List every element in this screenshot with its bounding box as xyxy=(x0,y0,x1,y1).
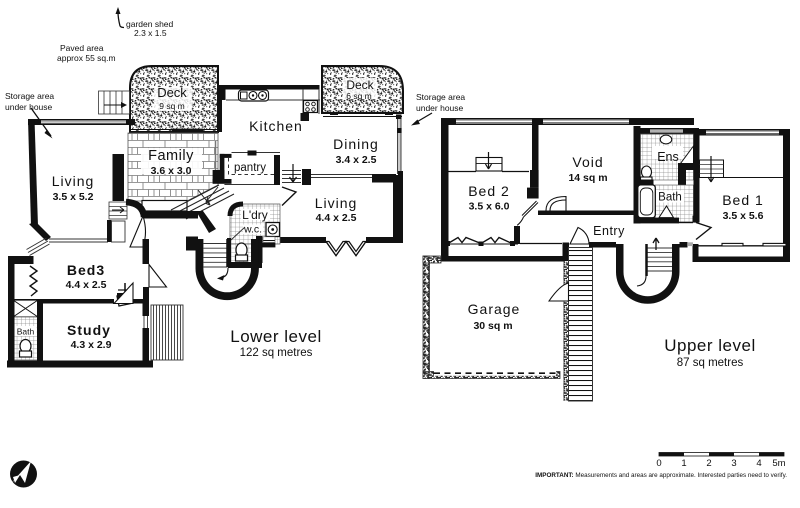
svg-text:3.4 x 2.5: 3.4 x 2.5 xyxy=(336,154,377,166)
svg-text:Bed 2: Bed 2 xyxy=(468,183,510,199)
svg-text:4.4 x 2.5: 4.4 x 2.5 xyxy=(66,279,107,291)
svg-text:under house: under house xyxy=(416,103,464,113)
svg-text:Living: Living xyxy=(52,173,95,189)
svg-text:Garage: Garage xyxy=(468,301,521,317)
svg-text:Ens: Ens xyxy=(657,150,679,164)
svg-text:approx 55 sq.m: approx 55 sq.m xyxy=(57,53,116,63)
svg-text:Study: Study xyxy=(67,322,111,338)
svg-text:0: 0 xyxy=(656,458,661,469)
svg-text:122 sq metres: 122 sq metres xyxy=(240,347,313,359)
svg-text:pantry: pantry xyxy=(234,162,266,174)
svg-text:Entry: Entry xyxy=(593,224,625,238)
svg-text:3.5 x 5.2: 3.5 x 5.2 xyxy=(53,191,94,203)
svg-text:Bath: Bath xyxy=(17,327,35,337)
svg-text:9 sq m: 9 sq m xyxy=(159,101,185,111)
svg-text:30 sq m: 30 sq m xyxy=(473,320,512,332)
svg-text:87 sq metres: 87 sq metres xyxy=(677,357,744,369)
svg-text:w.c.: w.c. xyxy=(243,224,262,236)
svg-text:Paved area: Paved area xyxy=(60,43,104,53)
svg-text:Deck: Deck xyxy=(157,85,187,100)
svg-text:Lower level: Lower level xyxy=(230,327,322,346)
svg-text:Bed3: Bed3 xyxy=(67,262,105,278)
svg-text:Deck: Deck xyxy=(346,78,374,92)
svg-text:4.4 x 2.5: 4.4 x 2.5 xyxy=(316,212,357,224)
svg-text:L'dry: L'dry xyxy=(242,208,268,222)
svg-text:IMPORTANT: Measurements and ar: IMPORTANT: Measurements and areas are ap… xyxy=(535,472,787,479)
svg-text:2: 2 xyxy=(706,458,711,469)
svg-text:1: 1 xyxy=(681,458,686,469)
svg-text:3: 3 xyxy=(731,458,736,469)
svg-text:5m: 5m xyxy=(772,458,785,469)
svg-text:4.3 x 2.9: 4.3 x 2.9 xyxy=(71,339,112,351)
svg-text:14 sq m: 14 sq m xyxy=(568,172,607,184)
svg-text:Living: Living xyxy=(315,195,358,211)
svg-text:3.5 x 5.6: 3.5 x 5.6 xyxy=(723,210,764,222)
svg-text:Storage area: Storage area xyxy=(416,92,465,102)
svg-text:Kitchen: Kitchen xyxy=(249,118,303,134)
svg-text:Upper level: Upper level xyxy=(664,336,756,355)
svg-text:Storage area: Storage area xyxy=(5,91,54,101)
svg-text:under house: under house xyxy=(5,102,53,112)
svg-text:4: 4 xyxy=(756,458,761,469)
svg-text:Bath: Bath xyxy=(658,192,682,204)
svg-text:3.5 x 6.0: 3.5 x 6.0 xyxy=(469,201,510,213)
svg-text:2.3 x 1.5: 2.3 x 1.5 xyxy=(134,28,167,38)
svg-text:6 sq m: 6 sq m xyxy=(346,91,372,101)
svg-text:Void: Void xyxy=(572,154,603,170)
svg-text:Bed 1: Bed 1 xyxy=(722,192,764,208)
svg-text:Dining: Dining xyxy=(333,136,379,152)
svg-text:Family: Family xyxy=(148,148,194,164)
svg-text:3.6 x 3.0: 3.6 x 3.0 xyxy=(151,165,192,177)
